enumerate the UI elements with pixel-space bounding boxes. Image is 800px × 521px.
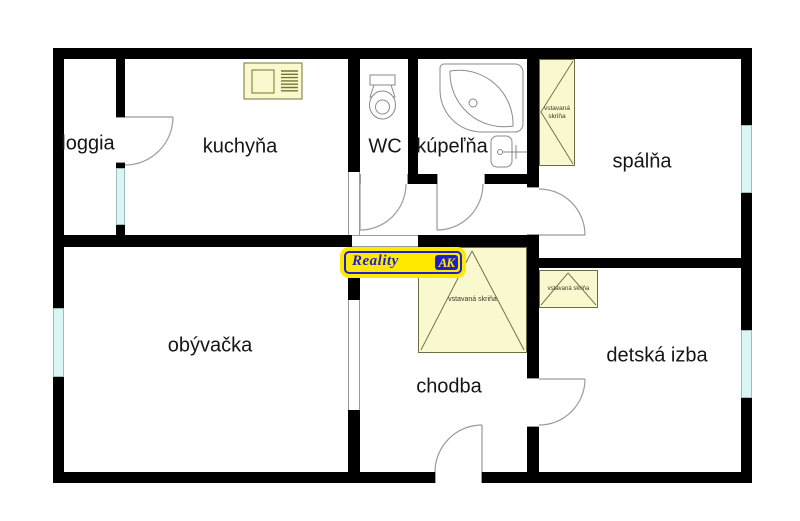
- door-swing-spalna: [539, 189, 585, 235]
- wall-outer-right-middle: [741, 193, 752, 330]
- wall-bath-bottom-a: [408, 174, 437, 184]
- room-label-kupelna: kúpeľňa: [416, 136, 487, 159]
- floor-plan: vstavaná skriňa vstavaná skriňa vstavaná…: [0, 0, 800, 521]
- wall-outer-top: [53, 48, 752, 59]
- wardrobe-label: vstavaná skriňa: [448, 296, 497, 304]
- door-opening-loggia: [116, 117, 125, 163]
- sink-icon: [491, 136, 527, 167]
- room-label-wc: WC: [368, 136, 401, 159]
- agency-logo: Reality AK: [344, 251, 462, 274]
- wardrobe-label: vstavaná skriňa: [548, 286, 590, 293]
- wall-outer-bottom-left: [53, 472, 435, 483]
- door-opening-spalna: [527, 187, 539, 235]
- door-swing-loggia: [125, 117, 173, 165]
- room-label-spalna: spálňa: [613, 151, 672, 174]
- wall-spalna-detska: [539, 258, 741, 268]
- window-spalna: [741, 125, 752, 193]
- door-opening-detska: [527, 378, 539, 427]
- window-detska: [741, 330, 752, 398]
- wardrobe-label: vstavaná skriňa: [540, 105, 574, 120]
- agency-logo-monogram: AK: [435, 255, 458, 270]
- passage-chodba-top: [352, 235, 418, 247]
- door-swing-wc: [360, 184, 406, 230]
- wall-outer-left-upper: [53, 48, 64, 308]
- door-opening-wc: [360, 174, 408, 184]
- wall-chodba-left-lower: [348, 410, 360, 472]
- wall-mid-right: [418, 235, 527, 247]
- window-obyvacka: [53, 308, 64, 377]
- wall-chodba-detska-lower: [527, 427, 539, 472]
- wall-loggia-a: [116, 59, 125, 117]
- wall-outer-bottom-right: [482, 472, 752, 483]
- room-label-kuchyna: kuchyňa: [203, 136, 278, 159]
- door-swing-kupelna: [437, 184, 483, 230]
- door-opening-kupelna: [437, 174, 485, 184]
- door-swing-detska: [539, 379, 585, 425]
- bathtub-icon: [440, 64, 523, 132]
- wall-wc-bath: [408, 59, 418, 184]
- passage-kuchyna-chodba: [348, 172, 360, 235]
- wall-outer-right-lower: [741, 398, 752, 483]
- door-swing-entry: [435, 425, 482, 472]
- passage-obyvacka-chodba: [348, 300, 360, 410]
- door-opening-entry: [435, 472, 482, 483]
- wall-outer-right-upper: [741, 48, 752, 125]
- room-label-chodba: chodba: [416, 376, 482, 399]
- wall-outer-left-lower: [53, 377, 64, 483]
- window-loggia: [116, 168, 125, 225]
- toilet-icon: [370, 75, 396, 119]
- stove-icon: [244, 63, 302, 99]
- wall-chodba-detska-upper: [527, 235, 539, 378]
- room-label-loggia: loggia: [61, 133, 114, 156]
- room-label-detska: detská izba: [606, 345, 707, 368]
- wardrobe-detska: vstavaná skriňa: [539, 270, 598, 308]
- agency-logo-text: Reality: [352, 253, 399, 270]
- wardrobe-spalna: vstavaná skriňa: [539, 59, 575, 166]
- wall-bath-bottom-b: [485, 174, 527, 184]
- wall-bath-spalna: [527, 59, 539, 187]
- room-label-obyvacka: obývačka: [168, 335, 253, 358]
- wall-kitchen-right: [348, 59, 360, 172]
- wall-mid-left: [64, 235, 352, 247]
- wall-loggia-c: [116, 225, 125, 235]
